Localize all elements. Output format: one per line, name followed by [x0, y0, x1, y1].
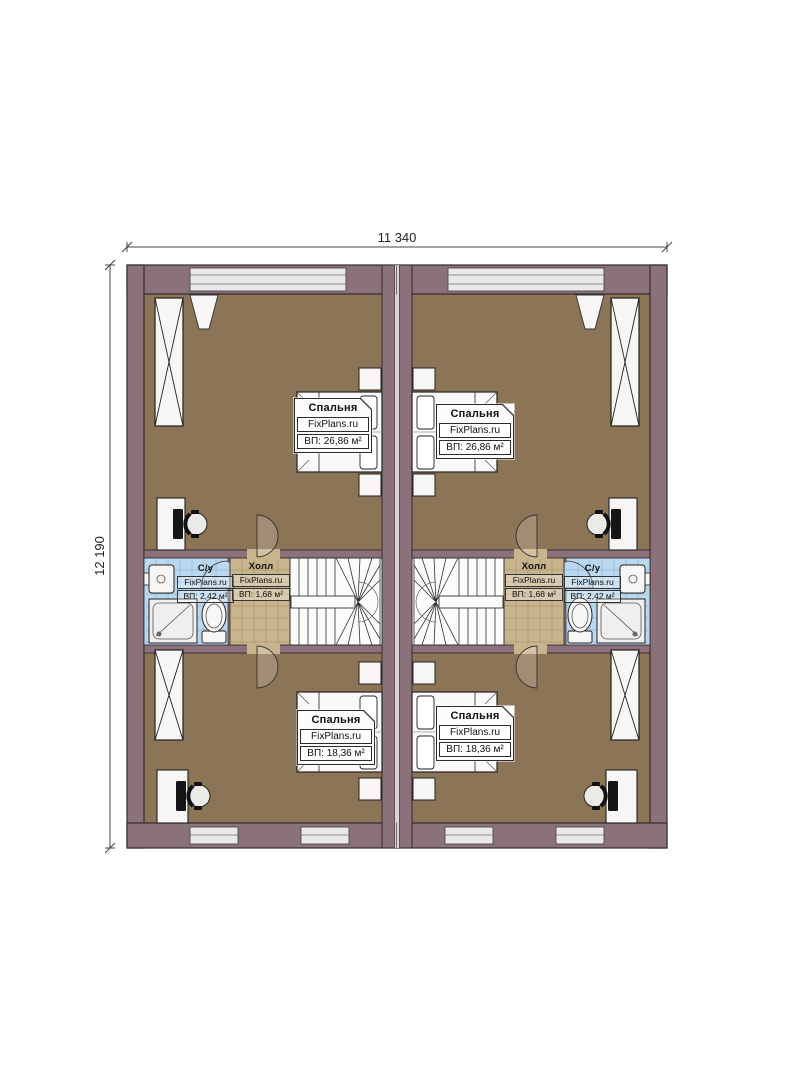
watermark: FixPlans.ru [297, 417, 369, 432]
room-area: ВП: 26,86 м² [439, 440, 511, 455]
watermark: FixPlans.ru [232, 574, 290, 587]
room-name: Холл [505, 561, 563, 573]
watermark: FixPlans.ru [300, 729, 372, 744]
room-area: ВП: 1,68 м² [232, 588, 290, 601]
fold-corner-icon [361, 398, 372, 409]
dimension-width: 11 340 [122, 230, 672, 252]
room-label-bedroom-top-right: Спальня FixPlans.ru ВП: 26,86 м² [436, 404, 514, 459]
room-label-bath-right: С/у FixPlans.ru ВП: 2,42 м² [564, 563, 621, 603]
watermark: FixPlans.ru [439, 423, 511, 438]
fold-corner-icon [503, 404, 514, 415]
watermark: FixPlans.ru [177, 576, 234, 589]
room-area: ВП: 18,36 м² [439, 742, 511, 757]
room-area: ВП: 26,86 м² [297, 434, 369, 449]
room-label-bedroom-top-left: Спальня FixPlans.ru ВП: 26,86 м² [294, 398, 372, 453]
fold-corner-icon [503, 706, 514, 717]
room-name: Спальня [439, 407, 511, 421]
room-label-hall-left: Холл FixPlans.ru ВП: 1,68 м² [232, 561, 290, 601]
room-name: С/у [177, 563, 234, 575]
room-label-hall-right: Холл FixPlans.ru ВП: 1,68 м² [505, 561, 563, 601]
floorplan-canvas: 11 340 12 190 Спальня FixPlans.ru ВП: 26… [0, 0, 792, 1080]
room-label-bath-left: С/у FixPlans.ru ВП: 2,42 м² [177, 563, 234, 603]
room-name: Спальня [439, 709, 511, 723]
dimension-height: 12 190 [92, 260, 115, 853]
building [127, 265, 667, 848]
room-name: Спальня [297, 401, 369, 415]
watermark: FixPlans.ru [564, 576, 621, 589]
room-name: Холл [232, 561, 290, 573]
floorplan-drawing: 11 340 12 190 [0, 0, 792, 1080]
room-name: С/у [564, 563, 621, 575]
watermark: FixPlans.ru [439, 725, 511, 740]
room-area: ВП: 2,42 м² [564, 590, 621, 603]
room-label-bedroom-bottom-right: Спальня FixPlans.ru ВП: 18,36 м² [436, 706, 514, 761]
room-area: ВП: 2,42 м² [177, 590, 234, 603]
fold-corner-icon [364, 710, 375, 721]
room-name: Спальня [300, 713, 372, 727]
dimension-height-label: 12 190 [92, 536, 107, 576]
room-area: ВП: 1,68 м² [505, 588, 563, 601]
room-label-bedroom-bottom-left: Спальня FixPlans.ru ВП: 18,36 м² [297, 710, 375, 765]
watermark: FixPlans.ru [505, 574, 563, 587]
dimension-width-label: 11 340 [378, 230, 417, 245]
room-area: ВП: 18,36 м² [300, 746, 372, 761]
